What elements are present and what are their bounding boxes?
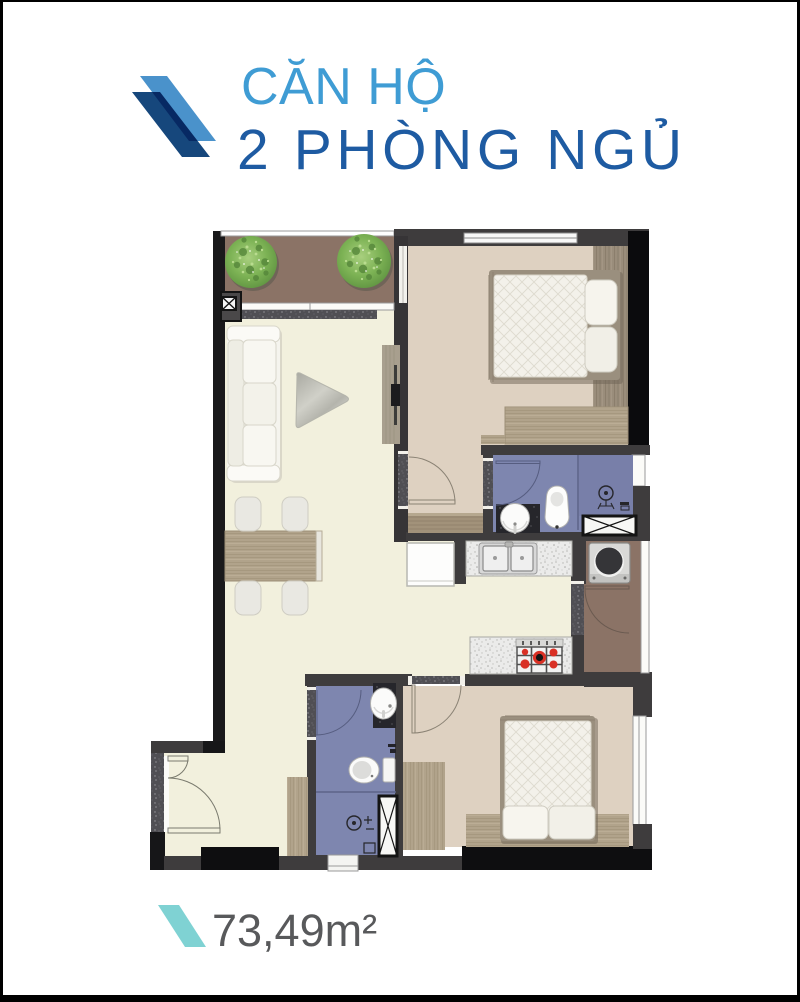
- svg-text:2 PHÒNG NGỦ: 2 PHÒNG NGỦ: [237, 117, 687, 182]
- svg-text:73,49m²: 73,49m²: [212, 905, 377, 956]
- svg-text:CĂN HỘ: CĂN HỘ: [241, 58, 446, 116]
